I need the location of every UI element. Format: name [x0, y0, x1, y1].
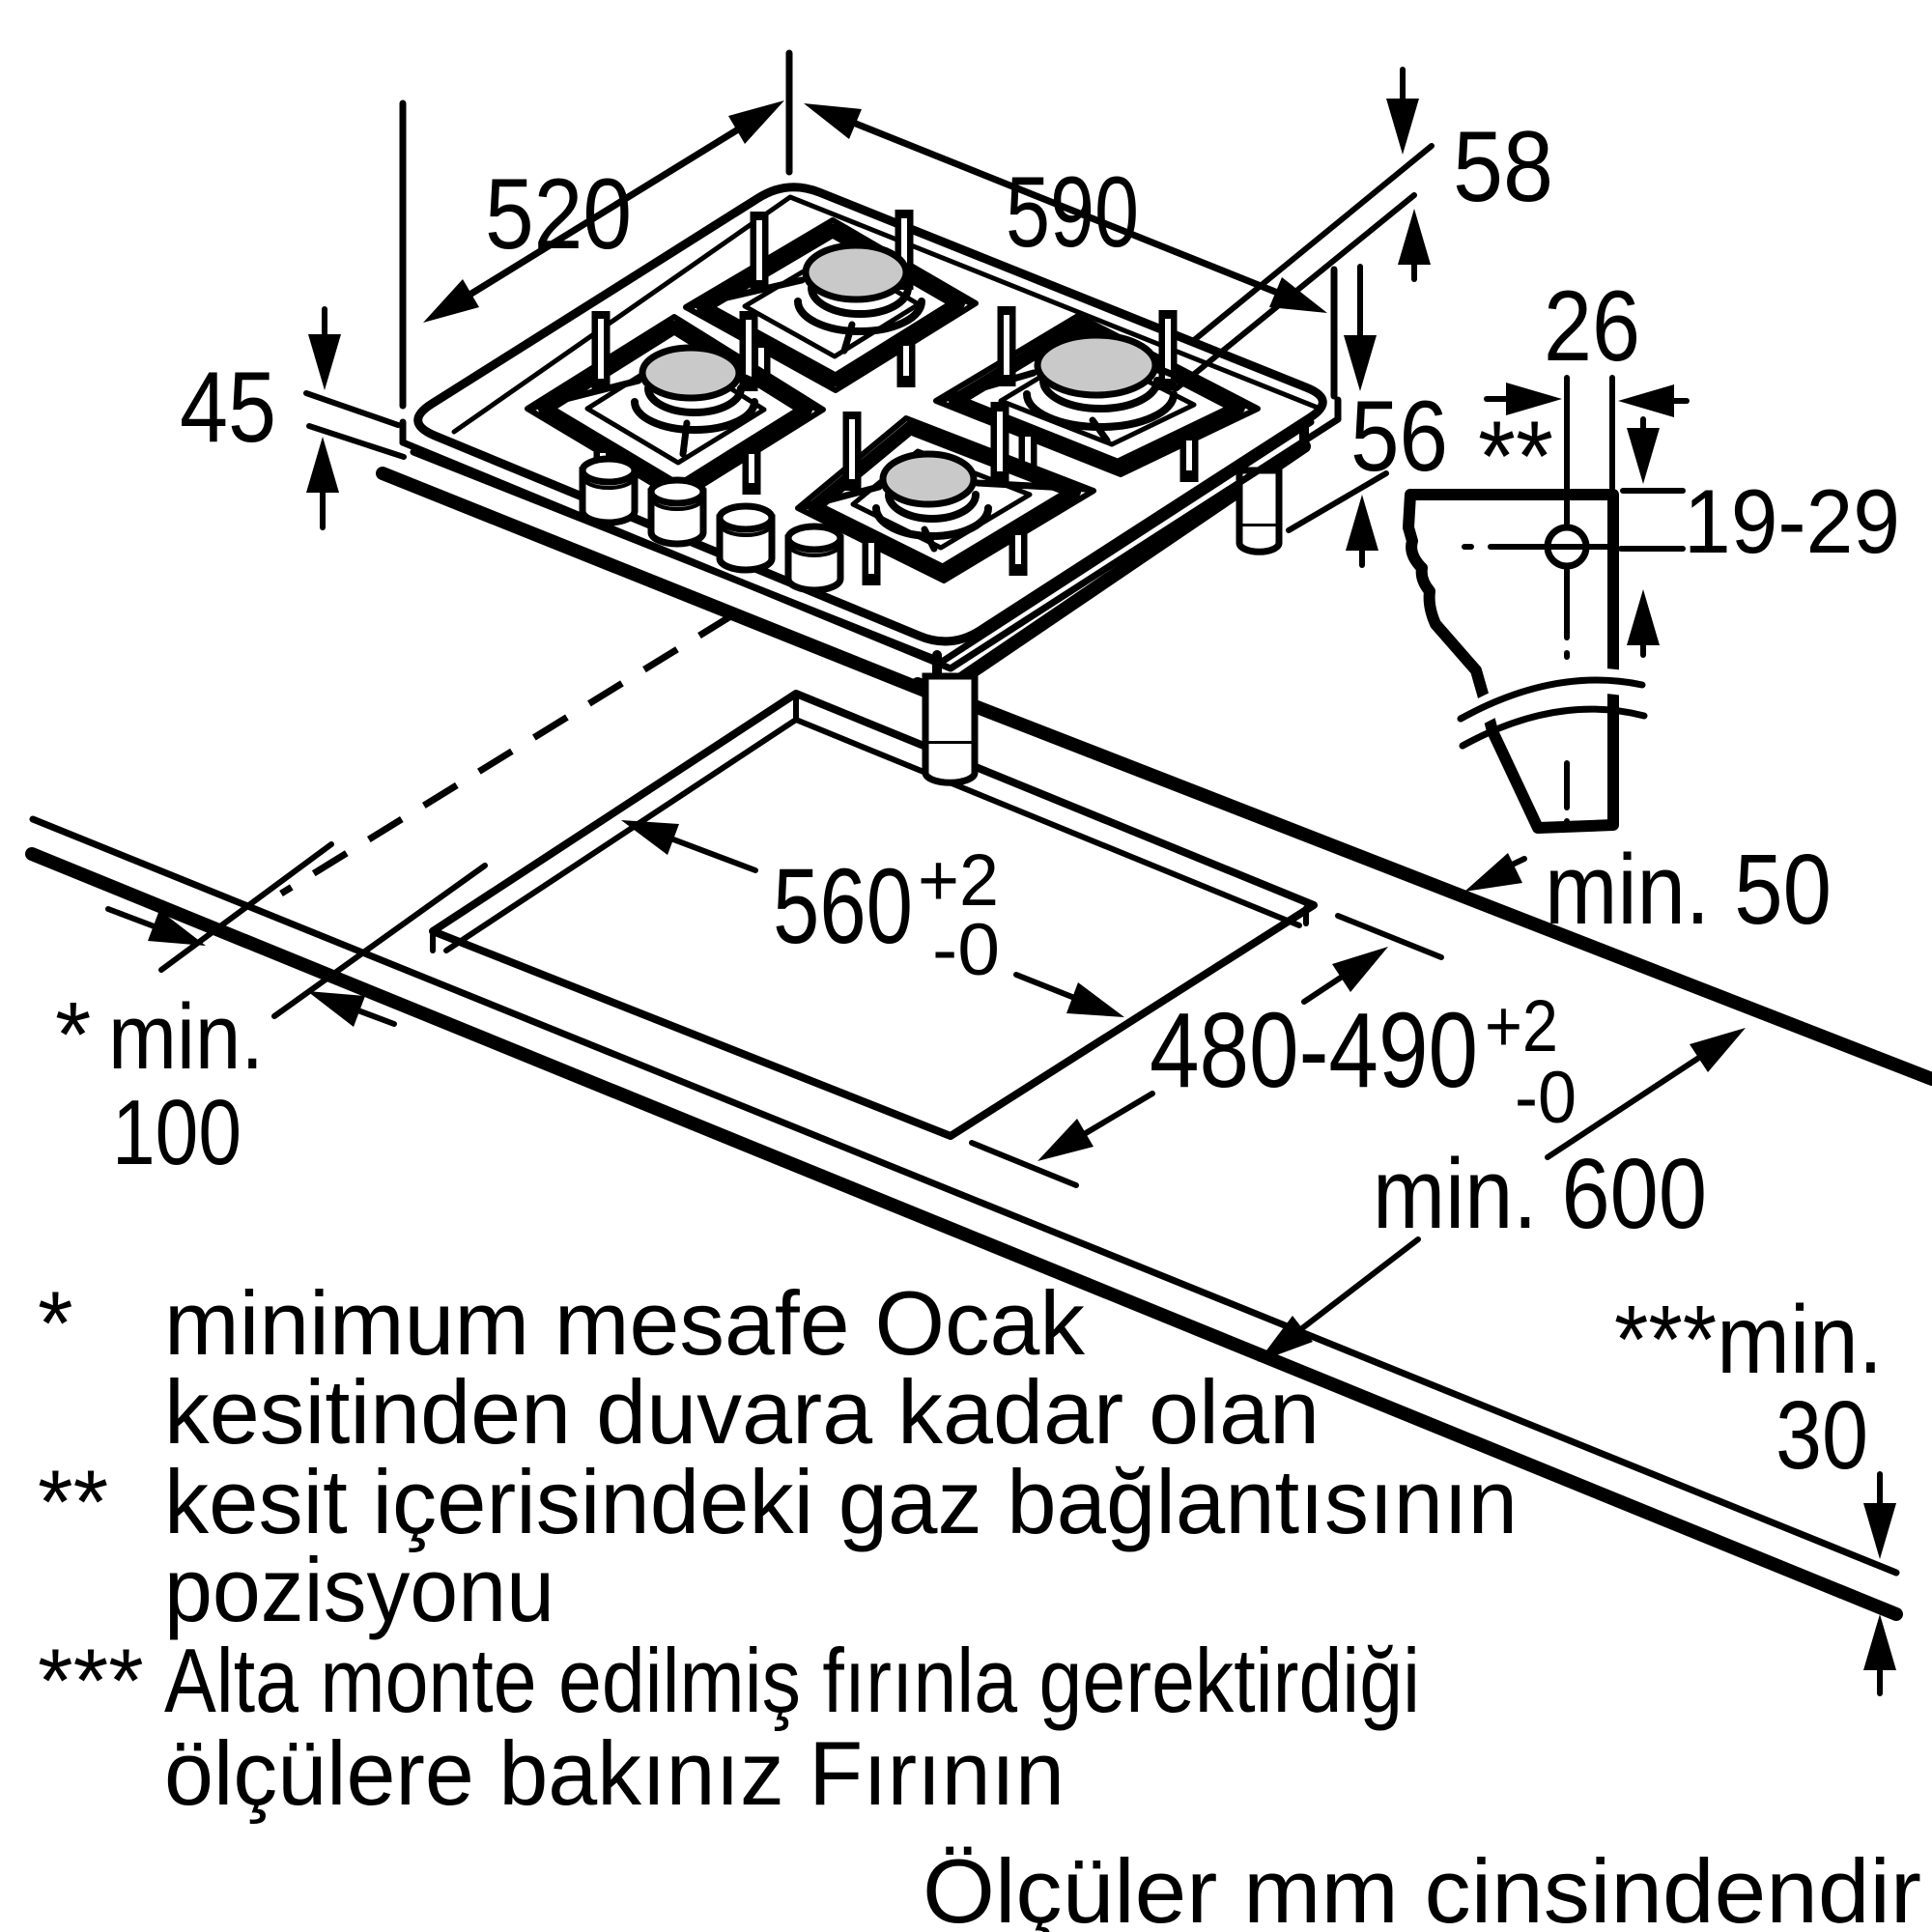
svg-text:Alta monte edilmiş fırınla ger: Alta monte edilmiş fırınla gerektirdiği — [164, 1630, 1420, 1731]
svg-text:min.: min. — [108, 985, 264, 1089]
svg-text:58: 58 — [1453, 111, 1553, 223]
svg-text:26: 26 — [1544, 270, 1640, 383]
svg-text:560: 560 — [773, 847, 913, 966]
svg-text:pozisyonu: pozisyonu — [164, 1539, 554, 1640]
svg-text:19-29: 19-29 — [1684, 470, 1900, 572]
svg-text:56: 56 — [1350, 381, 1448, 493]
svg-text:min. 600: min. 600 — [1373, 1138, 1707, 1249]
svg-text:45: 45 — [180, 352, 276, 464]
svg-text:520: 520 — [485, 158, 632, 270]
svg-text:+2: +2 — [1485, 985, 1558, 1067]
svg-text:**: ** — [1478, 401, 1553, 513]
svg-text:ölçülere bakınız Fırının: ölçülere bakınız Fırının — [164, 1722, 1065, 1824]
svg-text:Ölçüler mm cinsindendir: Ölçüler mm cinsindendir — [923, 1840, 1921, 1932]
svg-text:590: 590 — [1006, 156, 1139, 269]
svg-text:*: * — [38, 1272, 73, 1374]
svg-text:kesitinden duvara kadar olan: kesitinden duvara kadar olan — [164, 1361, 1320, 1463]
svg-text:kesit içerisindeki gaz bağlant: kesit içerisindeki gaz bağlantısının — [164, 1451, 1518, 1552]
svg-text:***: *** — [38, 1630, 144, 1731]
svg-text:***min.: ***min. — [1614, 1286, 1883, 1394]
svg-text:-0: -0 — [1515, 1057, 1577, 1139]
svg-text:*: * — [55, 983, 91, 1087]
svg-text:min. 50: min. 50 — [1545, 834, 1832, 945]
svg-text:minimum mesafe Ocak: minimum mesafe Ocak — [164, 1272, 1086, 1374]
svg-text:**: ** — [38, 1451, 108, 1552]
svg-text:100: 100 — [112, 1081, 241, 1184]
svg-text:-0: -0 — [932, 909, 1000, 991]
svg-text:480-490: 480-490 — [1150, 991, 1478, 1110]
svg-text:30: 30 — [1776, 1381, 1868, 1490]
